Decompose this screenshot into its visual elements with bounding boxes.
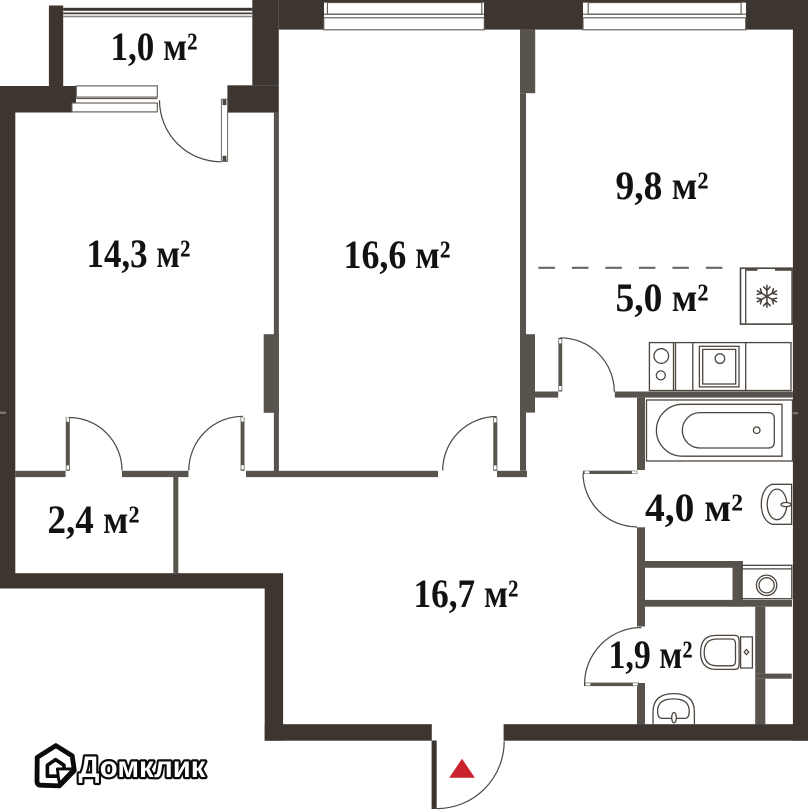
svg-text:2,4 м²: 2,4 м² — [48, 497, 140, 542]
svg-text:16,6 м²: 16,6 м² — [344, 232, 451, 277]
svg-text:5,0 м²: 5,0 м² — [616, 275, 709, 320]
svg-text:1,0 м²: 1,0 м² — [111, 24, 198, 69]
svg-text:4,0 м²: 4,0 м² — [645, 485, 743, 530]
svg-text:9,8 м²: 9,8 м² — [616, 163, 709, 208]
svg-text:14,3 м²: 14,3 м² — [87, 231, 191, 276]
svg-text:16,7 м²: 16,7 м² — [414, 571, 519, 616]
svg-text:Домклик: Домклик — [79, 751, 207, 784]
svg-text:1,9 м²: 1,9 м² — [609, 632, 693, 677]
